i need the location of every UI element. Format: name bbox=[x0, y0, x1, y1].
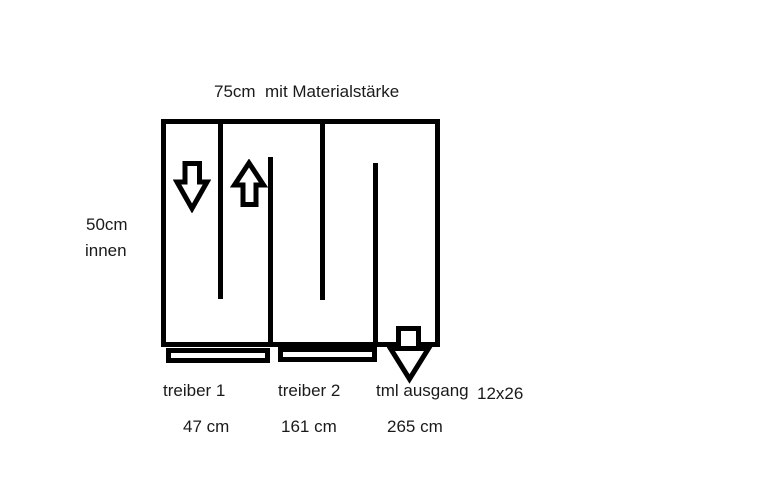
divider-line-2 bbox=[268, 157, 273, 347]
label-port-size: 12x26 bbox=[477, 384, 523, 403]
top-width-dimension-label: 75cm mit Materialstärke bbox=[214, 82, 399, 101]
enclosure-outline bbox=[161, 119, 440, 347]
divider-line-1 bbox=[218, 119, 223, 299]
diagram-canvas: 75cm mit Materialstärke 50cm innen treib… bbox=[0, 0, 768, 480]
label-treiber-2: treiber 2 bbox=[278, 381, 340, 400]
measurement-treiber-1: 47 cm bbox=[183, 417, 229, 436]
up-arrow-icon bbox=[230, 159, 268, 209]
divider-line-4 bbox=[373, 163, 378, 347]
output-down-arrow-icon bbox=[387, 322, 433, 384]
driver-slot-1 bbox=[166, 348, 270, 363]
driver-slot-2 bbox=[278, 347, 377, 362]
divider-line-3 bbox=[320, 119, 325, 300]
measurement-tml-ausgang: 265 cm bbox=[387, 417, 443, 436]
down-arrow-icon bbox=[173, 159, 211, 213]
measurement-treiber-2: 161 cm bbox=[281, 417, 337, 436]
left-height-dimension-sublabel: innen bbox=[85, 241, 127, 260]
left-height-dimension-label: 50cm bbox=[86, 215, 128, 234]
label-treiber-1: treiber 1 bbox=[163, 381, 225, 400]
